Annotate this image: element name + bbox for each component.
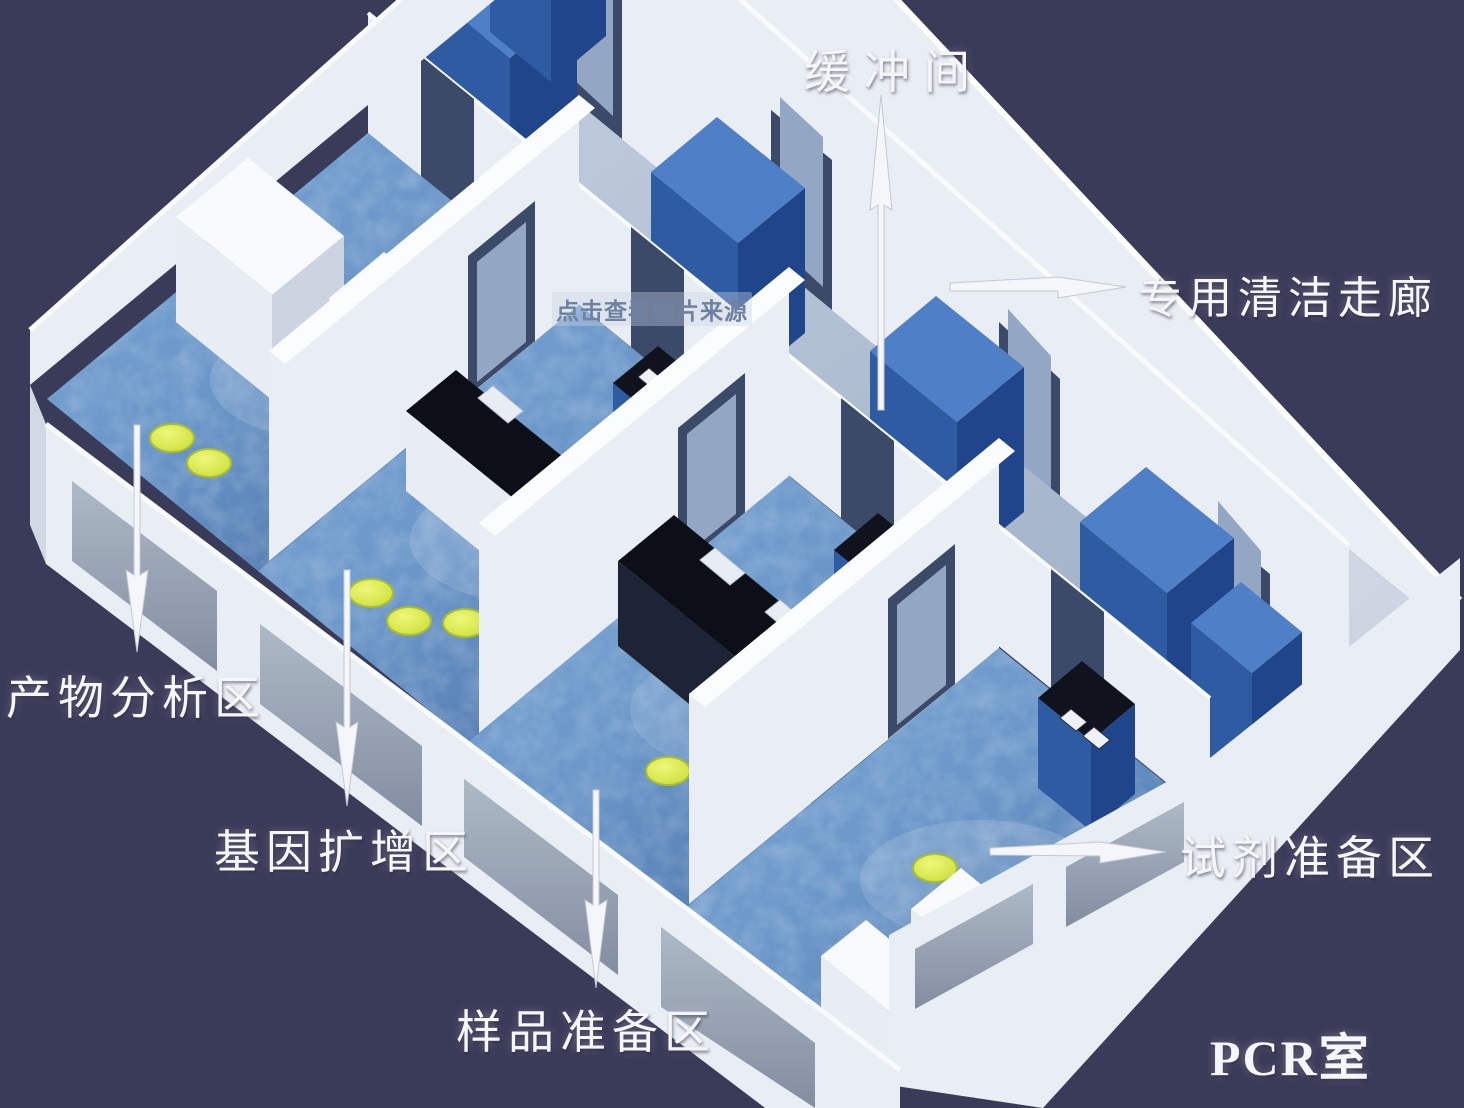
label-reagent-prep: 试剂准备区 [1180,822,1440,888]
label-clean-corridor: 专用清洁走廊 [1138,262,1438,326]
label-gene-amplification: 基因扩增区 [214,816,474,882]
label-sample-prep: 样品准备区 [456,996,716,1062]
watermark-link[interactable]: 点击查看图片来源 [552,292,752,326]
label-pcr-room: PCR室 [1210,1018,1371,1090]
lab-3d-scene [0,0,1464,1108]
label-product-analysis: 产物分析区 [6,662,266,728]
label-buffer-room: 缓冲间 [804,36,984,102]
pcr-lab-diagram: 点击查看图片来源 缓冲间 专用清洁走廊 产物分析区 基因扩增区 样品准备区 试剂… [0,0,1464,1108]
